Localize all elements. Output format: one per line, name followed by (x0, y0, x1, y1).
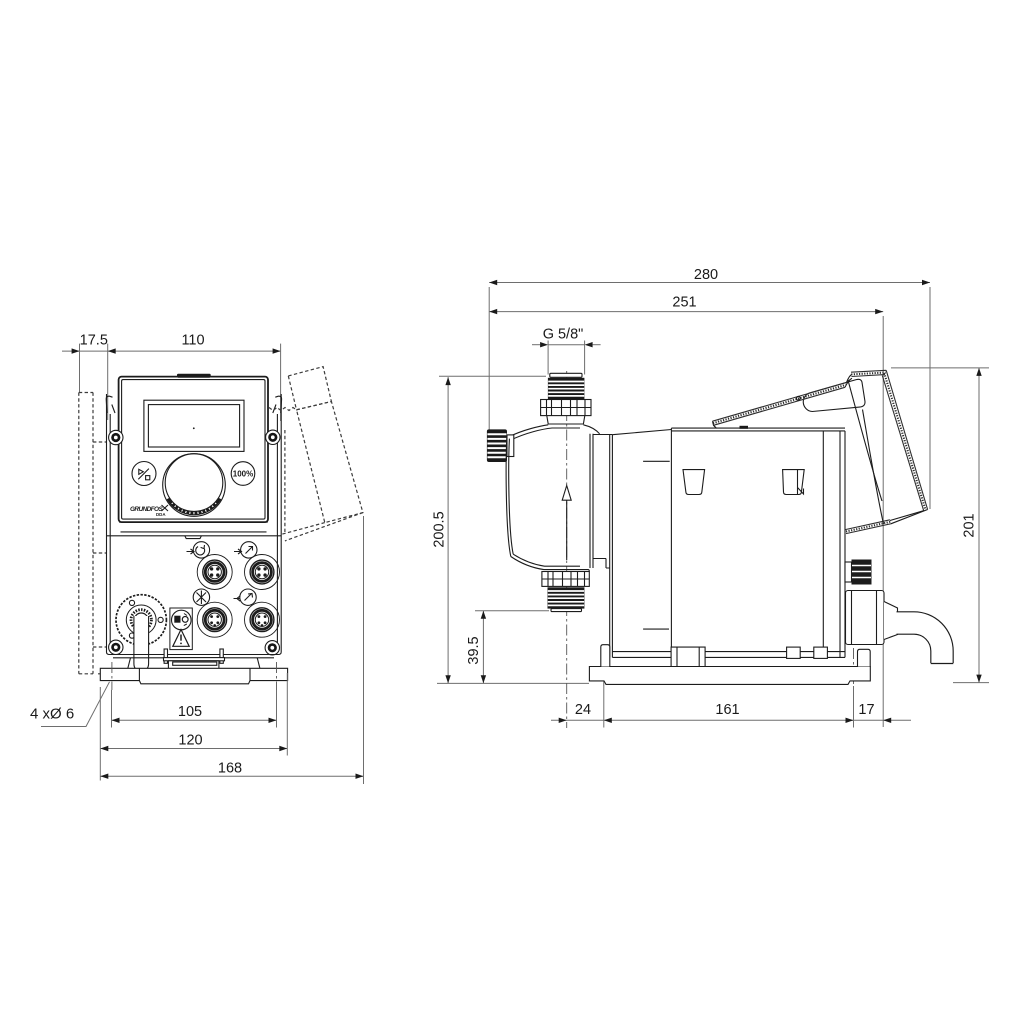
svg-text:200.5: 200.5 (432, 511, 448, 547)
svg-text:168: 168 (218, 760, 242, 776)
svg-text:4 xØ 6: 4 xØ 6 (30, 705, 74, 722)
svg-text:120: 120 (178, 732, 202, 748)
svg-text:100%: 100% (233, 470, 253, 479)
svg-text:161: 161 (715, 702, 739, 718)
svg-text:G 5/8": G 5/8" (543, 327, 584, 343)
svg-text:17.5: 17.5 (80, 333, 108, 349)
svg-text:251: 251 (672, 295, 696, 311)
svg-text:110: 110 (181, 333, 204, 349)
svg-text:280: 280 (694, 267, 718, 283)
svg-text:17: 17 (858, 702, 874, 718)
svg-text:201: 201 (962, 513, 978, 537)
svg-text:39.5: 39.5 (466, 636, 482, 664)
svg-text:105: 105 (178, 704, 202, 720)
svg-text:24: 24 (575, 702, 591, 718)
svg-text:DDA: DDA (156, 512, 166, 517)
